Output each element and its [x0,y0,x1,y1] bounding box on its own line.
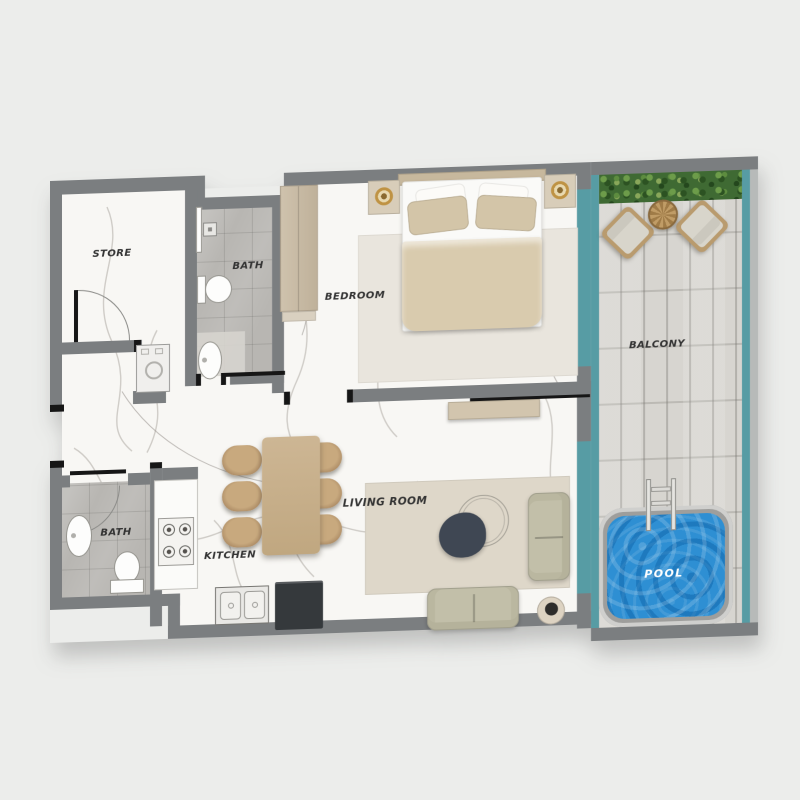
page-background: STORE BATH BEDROOM BALCONY BATH KITCHEN … [0,0,800,800]
shower-rail-icon [196,207,202,253]
console-table [448,399,540,420]
wall-segment [50,468,62,598]
door-jamb [50,405,64,412]
room-label-kitchen: KITCHEN [204,549,256,562]
room-label-pool: POOL [644,566,683,580]
toilet-tank [110,579,144,594]
wall-segment [50,355,62,405]
wardrobe-shelf [282,311,316,322]
balcony-glass-left [591,175,599,628]
wall-segment [577,593,591,628]
bedroom-window [577,189,591,366]
wall-segment [577,175,591,189]
living-sliding-door [577,441,591,593]
dining-chair [222,481,262,512]
dining-chair [222,445,262,476]
wall-segment [577,366,591,441]
room-label-bath-top: BATH [232,260,263,272]
dining-chair [222,517,262,548]
wardrobe [280,185,318,312]
room-label-store: STORE [92,248,131,260]
kitchen-sink-unit [215,585,269,625]
oven-appliance [275,580,323,630]
room-label-bedroom: BEDROOM [325,290,385,303]
wall-segment [128,473,150,486]
bed-pillow-beige [407,195,470,236]
sofa-bottom [427,586,519,631]
balcony-outer-edge [750,169,758,625]
bed-pillow-beige [475,195,538,232]
pool-ladder-icon [646,478,676,531]
stove-hob-icon [158,517,194,566]
balcony-hedge [599,170,742,204]
sofa-right [528,492,570,581]
coffee-table [439,512,486,559]
shower-head-icon [203,222,217,236]
dining-table [262,436,320,556]
balcony-glass-right [742,170,750,623]
wall-segment [62,475,70,487]
washing-machine-icon [136,344,170,393]
room-label-balcony: BALCONY [629,338,685,351]
door-jamb [284,392,290,405]
door-jamb [196,374,201,386]
bed-duvet [402,237,542,332]
floor-plan: STORE BATH BEDROOM BALCONY BATH KITCHEN … [50,125,758,665]
door-jamb [150,462,162,468]
room-label-bath-lower: BATH [100,527,131,539]
wall-segment [50,181,62,355]
door-jamb [347,389,353,402]
door-jamb [50,461,64,468]
